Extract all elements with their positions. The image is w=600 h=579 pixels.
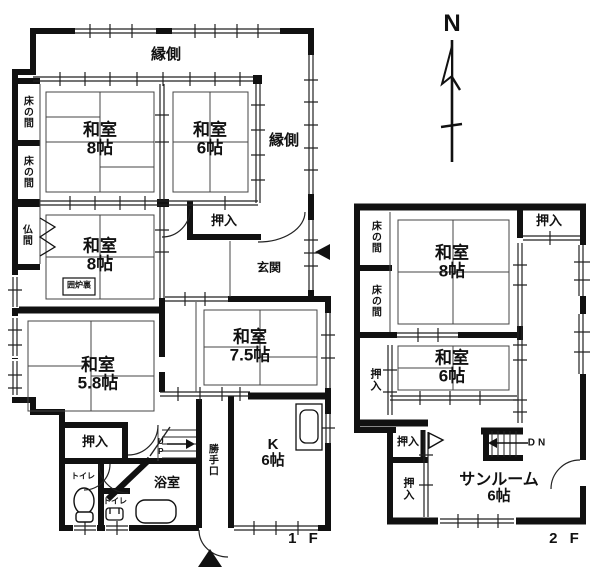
room-name: 和室 xyxy=(435,245,469,263)
room-name: サンルーム xyxy=(459,471,539,488)
sunroom-door-arc xyxy=(551,460,580,489)
room-name: 和室 xyxy=(83,238,117,256)
label-irori: 囲炉裏 xyxy=(67,282,91,291)
room-label-2f-tokonoma-1: 床の間 xyxy=(369,221,380,254)
north-compass-icon xyxy=(441,40,462,162)
room-label-toilet-2: トイレ xyxy=(103,498,127,507)
room-label-oshiire-hall: 押入 xyxy=(211,214,237,228)
room-size: 6帖 xyxy=(435,368,469,386)
room-label-bath: 浴室 xyxy=(154,476,180,490)
room-size: 6帖 xyxy=(193,140,227,158)
room-name: 和室 xyxy=(193,122,227,140)
room-label-washitsu58: 和室 5.8帖 xyxy=(78,357,119,394)
room-size: 7.5帖 xyxy=(230,347,271,365)
entrance-marker-east-icon xyxy=(315,244,330,260)
floor-label-2f: 2 F xyxy=(549,531,583,547)
room-label-sunroom: サンルーム 6帖 xyxy=(459,471,539,504)
room-size: 5.8帖 xyxy=(78,375,119,393)
room-label-2f-washitsu6: 和室 6帖 xyxy=(435,350,469,387)
compass-north-label: N xyxy=(443,11,460,37)
room-label-engawa-top: 縁側 xyxy=(151,47,181,63)
room-label-genkan: 玄関 xyxy=(257,262,281,275)
room-name: 和室 xyxy=(83,122,117,140)
room-size: 6帖 xyxy=(459,489,539,505)
room-name: 和室 xyxy=(230,329,271,347)
toilet-icon xyxy=(74,488,94,522)
room-size: 8帖 xyxy=(83,256,117,274)
room-label-2f-oshiire-w: 押入 xyxy=(368,368,380,392)
hand-sink-icon xyxy=(106,508,123,520)
room-label-washitsu6: 和室 6帖 xyxy=(193,122,227,159)
room-label-katteguchi: 勝手口 xyxy=(206,444,217,477)
bathtub-icon xyxy=(136,500,176,523)
room-label-oshiire-sw: 押入 xyxy=(82,435,108,449)
engawa-corner-post xyxy=(253,75,262,84)
room-label-engawa-right: 縁側 xyxy=(269,133,299,149)
room-label-tokonoma-2: 床の間 xyxy=(21,156,32,189)
room-label-2f-tokonoma-2: 床の間 xyxy=(369,285,380,318)
room-label-washitsu8-mid: 和室 8帖 xyxy=(83,238,117,275)
room-name: 和室 xyxy=(435,350,469,368)
room-label-2f-oshiire-sw: 押入 xyxy=(401,477,413,501)
floor-plan: 縁側 縁側 床の間 床の間 仏間 和室 8帖 和室 6帖 和室 8帖 囲炉裏 押… xyxy=(0,0,600,579)
kitchen-sink-icon xyxy=(296,404,322,450)
room-size: 6帖 xyxy=(261,453,284,469)
room-label-tokonoma-1: 床の間 xyxy=(21,96,32,129)
room-size: 8帖 xyxy=(435,263,469,281)
label-stairs-up: UP xyxy=(156,437,165,457)
butsuma-folding-door-icon xyxy=(40,218,55,256)
f2-window-underlay xyxy=(438,517,516,525)
room-label-2f-washitsu8: 和室 8帖 xyxy=(435,245,469,282)
room-label-2f-oshiire-ne: 押入 xyxy=(536,214,562,228)
room-label-butsuma: 仏間 xyxy=(20,224,31,246)
room-label-washitsu75: 和室 7.5帖 xyxy=(230,329,271,366)
room-label-kitchen: K 6帖 xyxy=(261,437,284,469)
stairs-2f-down-arrow xyxy=(488,438,528,448)
label-stairs-down: DN xyxy=(528,439,548,450)
stairs-1f-up-arrow xyxy=(167,439,195,449)
room-label-2f-oshiire-mid: 押入 xyxy=(397,437,419,449)
entrance-marker-south-icon xyxy=(198,549,222,567)
room-size: 8帖 xyxy=(83,140,117,158)
room-label-toilet-1: トイレ xyxy=(71,473,95,482)
room-name: K xyxy=(261,437,284,453)
room-name: 和室 xyxy=(78,357,119,375)
floor-label-1f: 1 F xyxy=(288,531,322,547)
room-label-washitsu8-top: 和室 8帖 xyxy=(83,122,117,159)
sunroom-entry-marker-icon xyxy=(429,433,443,448)
